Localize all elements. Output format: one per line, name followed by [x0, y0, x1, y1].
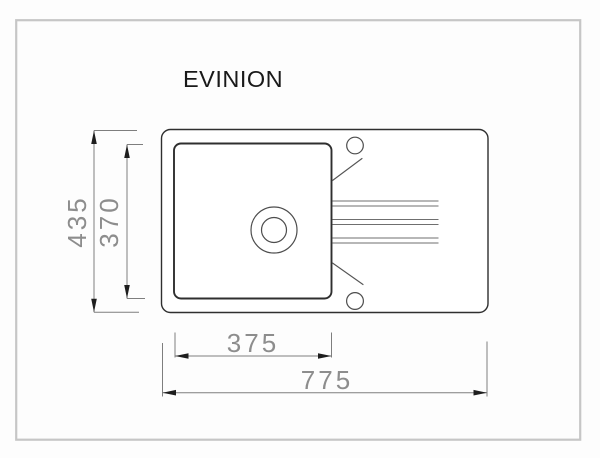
dimension-label: 370 [94, 195, 124, 247]
sink-dimension-diagram: EVINION [0, 0, 600, 458]
dimension-label: 375 [227, 328, 279, 358]
drain-icon [251, 207, 297, 253]
tap-hole-bottom-icon [347, 293, 364, 310]
dimension-bowl-depth: 370 [94, 145, 145, 299]
arrow-left-icon [175, 353, 189, 359]
tap-hole-top-icon [347, 137, 364, 154]
dimension-overall-width: 775 [163, 342, 488, 397]
drain-inner-circle [262, 218, 287, 243]
dimension-label: 435 [62, 195, 92, 247]
dimension-label: 775 [301, 365, 353, 395]
arrow-up-icon [124, 145, 130, 159]
arrow-left-icon [163, 390, 177, 396]
drawing-page: EVINION [0, 0, 600, 458]
model-title: EVINION [183, 66, 283, 92]
arrow-up-icon [91, 131, 97, 145]
dimension-bowl-width: 375 [175, 328, 332, 359]
arrow-down-icon [124, 285, 130, 299]
arrow-right-icon [474, 390, 488, 396]
arrow-right-icon [318, 353, 332, 359]
arrow-down-icon [91, 299, 97, 313]
sink-top-view [162, 130, 489, 313]
